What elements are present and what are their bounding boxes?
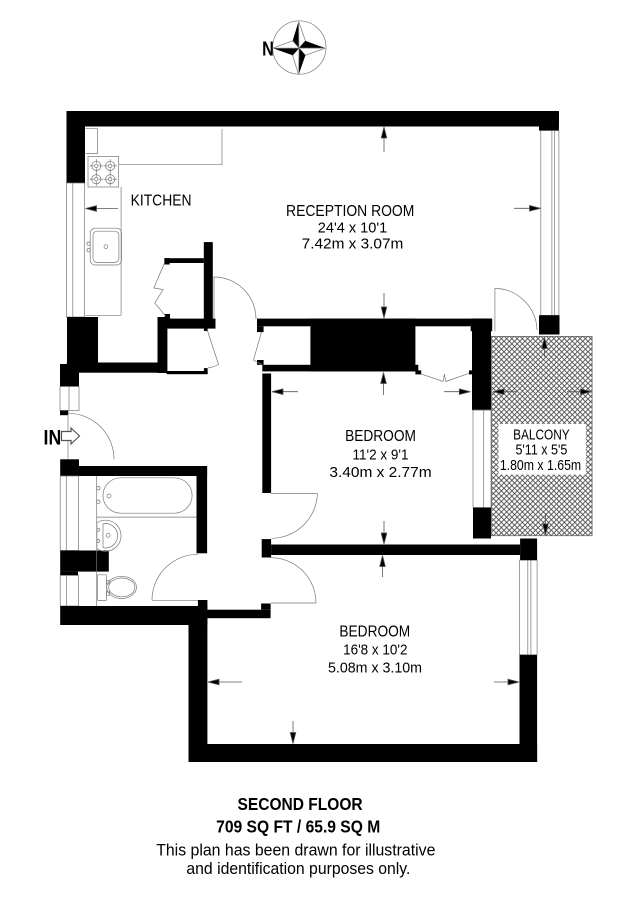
svg-text:KITCHEN: KITCHEN — [131, 192, 192, 209]
svg-text:SECOND FLOOR: SECOND FLOOR — [238, 794, 363, 814]
svg-text:and identification purposes on: and identification purposes only. — [186, 859, 410, 878]
svg-text:BEDROOM: BEDROOM — [339, 624, 410, 641]
svg-text:RECEPTION ROOM: RECEPTION ROOM — [286, 203, 414, 220]
svg-text:5.08m x 3.10m: 5.08m x 3.10m — [328, 660, 422, 677]
svg-text:16'8 x 10'2: 16'8 x 10'2 — [343, 642, 407, 659]
svg-text:7.42m x 3.07m: 7.42m x 3.07m — [302, 236, 404, 253]
svg-text:24'4 x 10'1: 24'4 x 10'1 — [318, 219, 388, 236]
svg-text:This plan has been drawn for i: This plan has been drawn for illustrativ… — [156, 840, 435, 859]
svg-text:11'2 x 9'1: 11'2 x 9'1 — [353, 446, 409, 463]
svg-text:709 SQ FT / 65.9 SQ M: 709 SQ FT / 65.9 SQ M — [216, 816, 380, 836]
svg-text:3.40m x 2.77m: 3.40m x 2.77m — [329, 464, 431, 481]
svg-text:1.80m x 1.65m: 1.80m x 1.65m — [500, 457, 581, 474]
svg-text:N: N — [262, 37, 274, 60]
svg-text:5'11 x 5'5: 5'11 x 5'5 — [515, 442, 567, 459]
svg-text:IN: IN — [44, 426, 62, 450]
svg-text:BEDROOM: BEDROOM — [345, 428, 416, 445]
